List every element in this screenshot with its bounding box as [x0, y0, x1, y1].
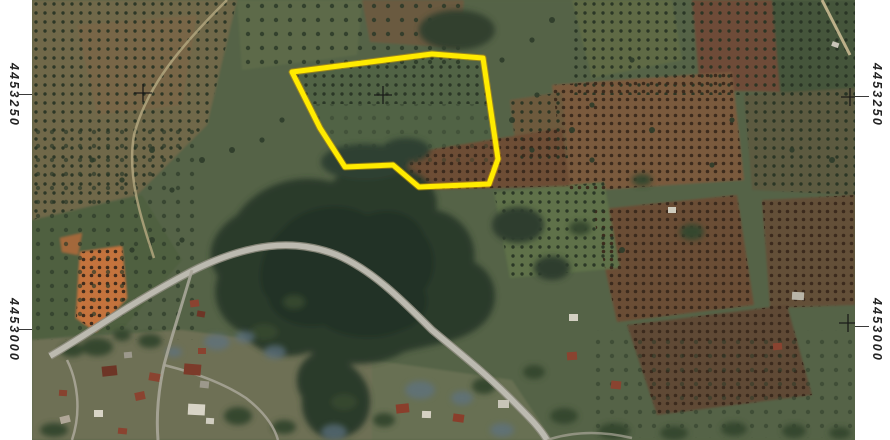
grid-tick-right-top: [855, 96, 869, 97]
northing-label-right-top: 4453250: [870, 63, 884, 127]
building: [396, 403, 410, 413]
building: [206, 418, 214, 424]
building: [102, 365, 118, 377]
building: [190, 299, 200, 307]
building: [422, 411, 431, 418]
building: [773, 343, 783, 351]
grid-tick-right-bottom: [855, 326, 869, 327]
building: [569, 314, 578, 321]
orthophoto-extract: 4453250 4453000 4453250 4453000: [0, 0, 890, 440]
building: [188, 404, 206, 416]
building: [452, 413, 464, 422]
building: [124, 352, 132, 359]
building: [567, 352, 578, 361]
building: [668, 207, 676, 213]
building: [498, 400, 509, 408]
building: [200, 381, 210, 389]
aerial-map: [32, 0, 855, 440]
building: [118, 428, 128, 435]
grid-tick-left-top: [18, 94, 32, 95]
building: [792, 292, 804, 301]
northing-label-left-top: 4453250: [7, 63, 21, 127]
northing-label-right-bottom: 4453000: [870, 298, 884, 362]
building: [94, 410, 103, 417]
building: [198, 348, 206, 354]
building: [611, 380, 622, 389]
building: [59, 390, 67, 397]
northing-label-left-bottom: 4453000: [7, 298, 21, 362]
grid-tick-left-bottom: [18, 329, 32, 330]
aerial-scene: [32, 0, 855, 440]
building: [184, 363, 202, 375]
